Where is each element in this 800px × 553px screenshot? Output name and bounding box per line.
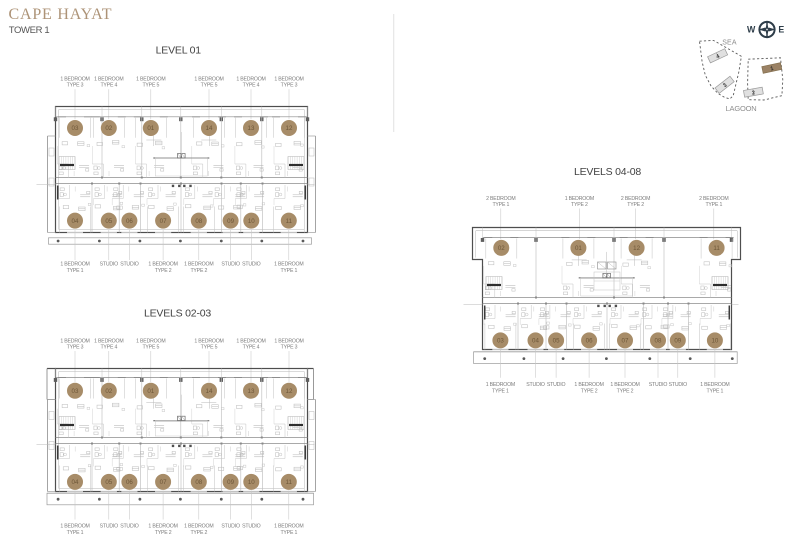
svg-text:11: 11: [286, 218, 293, 225]
svg-text:05: 05: [105, 218, 112, 225]
svg-text:11: 11: [286, 479, 293, 486]
svg-text:03: 03: [72, 125, 79, 132]
svg-text:01: 01: [147, 125, 154, 132]
svg-text:1 BEDROOM: 1 BEDROOM: [94, 76, 123, 82]
svg-text:12: 12: [633, 245, 640, 252]
svg-text:1 BEDROOM: 1 BEDROOM: [136, 76, 165, 82]
svg-text:06: 06: [126, 479, 133, 486]
svg-text:02: 02: [498, 245, 505, 252]
svg-text:1 BEDROOM: 1 BEDROOM: [60, 262, 89, 268]
svg-text:TYPE 3: TYPE 3: [67, 345, 84, 351]
svg-text:STUDIO: STUDIO: [547, 382, 566, 388]
svg-text:1 BEDROOM: 1 BEDROOM: [184, 524, 213, 530]
svg-text:TYPE 1: TYPE 1: [707, 388, 724, 394]
svg-text:1 BEDROOM: 1 BEDROOM: [610, 382, 639, 388]
svg-text:TYPE 4: TYPE 4: [243, 83, 260, 89]
svg-text:02: 02: [105, 388, 112, 395]
svg-text:TYPE 4: TYPE 4: [243, 345, 260, 351]
svg-text:08: 08: [655, 338, 662, 345]
svg-text:04: 04: [72, 218, 79, 225]
svg-text:STUDIO: STUDIO: [669, 382, 688, 388]
svg-text:STUDIO: STUDIO: [221, 262, 240, 268]
svg-text:08: 08: [195, 218, 202, 225]
svg-text:1 BEDROOM: 1 BEDROOM: [148, 524, 177, 530]
svg-text:07: 07: [622, 338, 629, 345]
svg-text:1 BEDROOM: 1 BEDROOM: [565, 196, 594, 202]
svg-text:LAGOON: LAGOON: [726, 104, 757, 113]
svg-text:08: 08: [195, 479, 202, 486]
svg-text:1 BEDROOM: 1 BEDROOM: [236, 76, 265, 82]
svg-text:STUDIO: STUDIO: [649, 382, 668, 388]
svg-text:06: 06: [126, 218, 133, 225]
svg-text:1 BEDROOM: 1 BEDROOM: [194, 338, 223, 344]
svg-text:TOWER 1: TOWER 1: [9, 25, 50, 36]
svg-text:1 BEDROOM: 1 BEDROOM: [274, 262, 303, 268]
svg-text:TYPE 4: TYPE 4: [100, 83, 117, 89]
svg-text:10: 10: [711, 338, 718, 345]
svg-text:06: 06: [586, 338, 593, 345]
svg-text:CAPE HAYAT: CAPE HAYAT: [9, 6, 113, 23]
svg-text:09: 09: [227, 479, 234, 486]
svg-text:1 BEDROOM: 1 BEDROOM: [60, 338, 89, 344]
svg-text:TYPE 2: TYPE 2: [190, 268, 207, 274]
svg-text:07: 07: [160, 479, 167, 486]
svg-text:TYPE 1: TYPE 1: [67, 530, 84, 536]
svg-text:1 BEDROOM: 1 BEDROOM: [700, 382, 729, 388]
svg-text:TYPE 4: TYPE 4: [100, 345, 117, 351]
svg-text:TYPE 2: TYPE 2: [190, 530, 207, 536]
svg-text:1 BEDROOM: 1 BEDROOM: [274, 76, 303, 82]
svg-text:TYPE 2: TYPE 2: [155, 268, 172, 274]
svg-text:2 BEDROOM: 2 BEDROOM: [699, 196, 728, 202]
svg-text:14: 14: [206, 125, 213, 132]
svg-text:TYPE 5: TYPE 5: [142, 83, 159, 89]
svg-text:13: 13: [248, 125, 255, 132]
svg-text:STUDIO: STUDIO: [221, 524, 240, 530]
svg-text:04: 04: [532, 338, 539, 345]
svg-text:07: 07: [160, 218, 167, 225]
svg-text:11: 11: [713, 245, 720, 252]
svg-text:TYPE 3: TYPE 3: [281, 345, 298, 351]
svg-text:E: E: [778, 25, 784, 35]
svg-text:1 BEDROOM: 1 BEDROOM: [194, 76, 223, 82]
svg-text:LEVELS 04-08: LEVELS 04-08: [574, 166, 641, 178]
svg-text:TYPE 1: TYPE 1: [280, 268, 297, 274]
svg-text:01: 01: [147, 388, 154, 395]
svg-text:STUDIO: STUDIO: [120, 262, 139, 268]
svg-text:TYPE 1: TYPE 1: [492, 388, 509, 394]
svg-text:TYPE 2: TYPE 2: [155, 530, 172, 536]
svg-text:TYPE 2: TYPE 2: [627, 202, 644, 208]
svg-text:01: 01: [575, 245, 582, 252]
svg-text:STUDIO: STUDIO: [100, 262, 119, 268]
svg-text:TYPE 5: TYPE 5: [142, 345, 159, 351]
svg-text:03: 03: [72, 388, 79, 395]
svg-text:TYPE 1: TYPE 1: [280, 530, 297, 536]
svg-text:LEVEL 01: LEVEL 01: [156, 45, 202, 57]
svg-text:TYPE 1: TYPE 1: [67, 268, 84, 274]
svg-text:02: 02: [105, 125, 112, 132]
svg-text:STUDIO: STUDIO: [100, 524, 119, 530]
svg-text:1 BEDROOM: 1 BEDROOM: [236, 338, 265, 344]
svg-text:2 BEDROOM: 2 BEDROOM: [621, 196, 650, 202]
svg-text:1 BEDROOM: 1 BEDROOM: [60, 76, 89, 82]
svg-text:09: 09: [227, 218, 234, 225]
svg-text:1 BEDROOM: 1 BEDROOM: [574, 382, 603, 388]
svg-text:TYPE 2: TYPE 2: [617, 388, 634, 394]
svg-text:TYPE 2: TYPE 2: [571, 202, 588, 208]
svg-text:2 BEDROOM: 2 BEDROOM: [486, 196, 515, 202]
svg-text:13: 13: [248, 388, 255, 395]
svg-text:14: 14: [206, 388, 213, 395]
svg-text:1 BEDROOM: 1 BEDROOM: [274, 524, 303, 530]
svg-text:TYPE 1: TYPE 1: [705, 202, 722, 208]
svg-text:10: 10: [248, 218, 255, 225]
svg-text:1 BEDROOM: 1 BEDROOM: [184, 262, 213, 268]
svg-text:04: 04: [72, 479, 79, 486]
svg-text:12: 12: [286, 388, 293, 395]
svg-text:10: 10: [248, 479, 255, 486]
svg-text:1 BEDROOM: 1 BEDROOM: [148, 262, 177, 268]
svg-text:TYPE 1: TYPE 1: [492, 202, 509, 208]
svg-text:STUDIO: STUDIO: [242, 262, 261, 268]
svg-text:SEA: SEA: [722, 40, 737, 47]
svg-text:1 BEDROOM: 1 BEDROOM: [136, 338, 165, 344]
svg-text:1 BEDROOM: 1 BEDROOM: [274, 338, 303, 344]
svg-text:1 BEDROOM: 1 BEDROOM: [486, 382, 515, 388]
svg-text:TYPE 5: TYPE 5: [201, 345, 218, 351]
svg-text:1 BEDROOM: 1 BEDROOM: [94, 338, 123, 344]
svg-text:TYPE 5: TYPE 5: [201, 83, 218, 89]
svg-text:TYPE 3: TYPE 3: [281, 83, 298, 89]
svg-text:05: 05: [105, 479, 112, 486]
svg-text:W: W: [747, 25, 756, 35]
svg-text:09: 09: [674, 338, 681, 345]
svg-text:LEVELS 02-03: LEVELS 02-03: [144, 307, 211, 319]
svg-text:TYPE 2: TYPE 2: [581, 388, 598, 394]
svg-text:03: 03: [497, 338, 504, 345]
svg-text:STUDIO: STUDIO: [120, 524, 139, 530]
svg-text:STUDIO: STUDIO: [526, 382, 545, 388]
svg-text:05: 05: [553, 338, 560, 345]
svg-text:STUDIO: STUDIO: [242, 524, 261, 530]
svg-text:12: 12: [286, 125, 293, 132]
svg-text:1 BEDROOM: 1 BEDROOM: [60, 524, 89, 530]
svg-text:TYPE 3: TYPE 3: [67, 83, 84, 89]
